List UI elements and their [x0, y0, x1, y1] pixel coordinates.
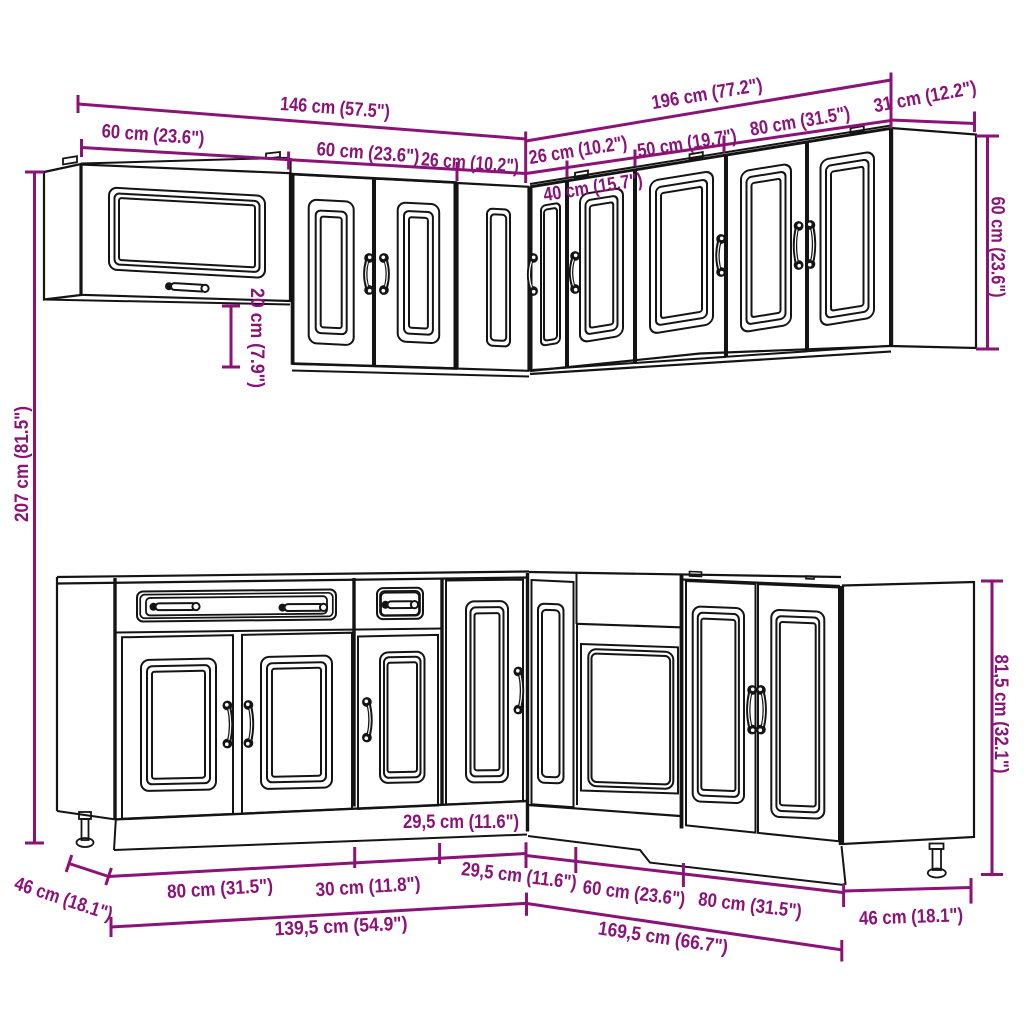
svg-text:46 cm (18.1"): 46 cm (18.1"): [859, 904, 964, 930]
svg-text:60 cm (23.6"): 60 cm (23.6"): [987, 197, 1009, 298]
svg-text:29,5 cm (11.6"): 29,5 cm (11.6"): [403, 811, 519, 833]
svg-text:207 cm (81.5"): 207 cm (81.5"): [11, 406, 33, 522]
svg-text:20 cm (7.9"): 20 cm (7.9"): [246, 288, 268, 388]
svg-text:81,5 cm (32.1"): 81,5 cm (32.1"): [990, 655, 1012, 774]
